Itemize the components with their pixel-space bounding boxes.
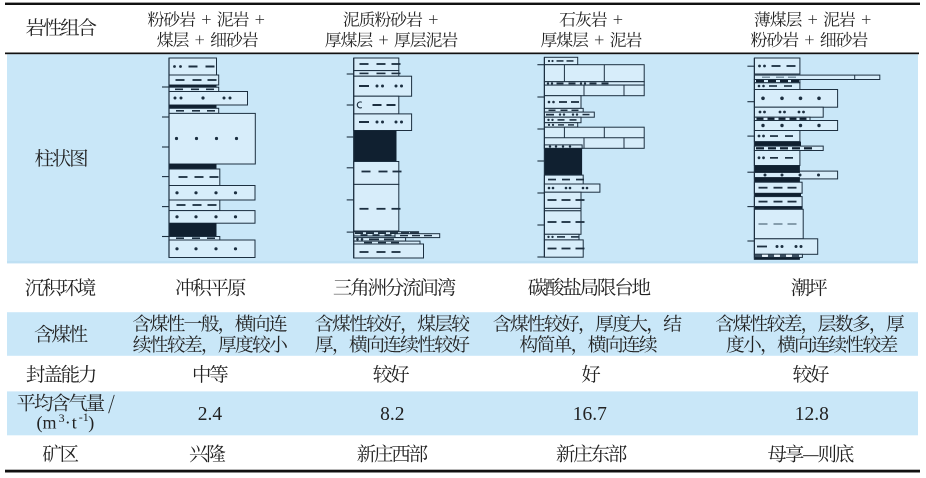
svg-text:·: · bbox=[65, 412, 71, 432]
svg-text:16.7: 16.7 bbox=[573, 404, 607, 425]
svg-text:2.4: 2.4 bbox=[198, 404, 223, 425]
svg-text:12.8: 12.8 bbox=[795, 404, 829, 425]
svg-text:t: t bbox=[72, 412, 77, 432]
svg-text:-1: -1 bbox=[79, 410, 89, 424]
svg-text:8.2: 8.2 bbox=[380, 404, 404, 425]
svg-text:(m: (m bbox=[37, 412, 57, 433]
svg-text:): ) bbox=[88, 412, 94, 433]
svg-text:3: 3 bbox=[59, 411, 65, 425]
